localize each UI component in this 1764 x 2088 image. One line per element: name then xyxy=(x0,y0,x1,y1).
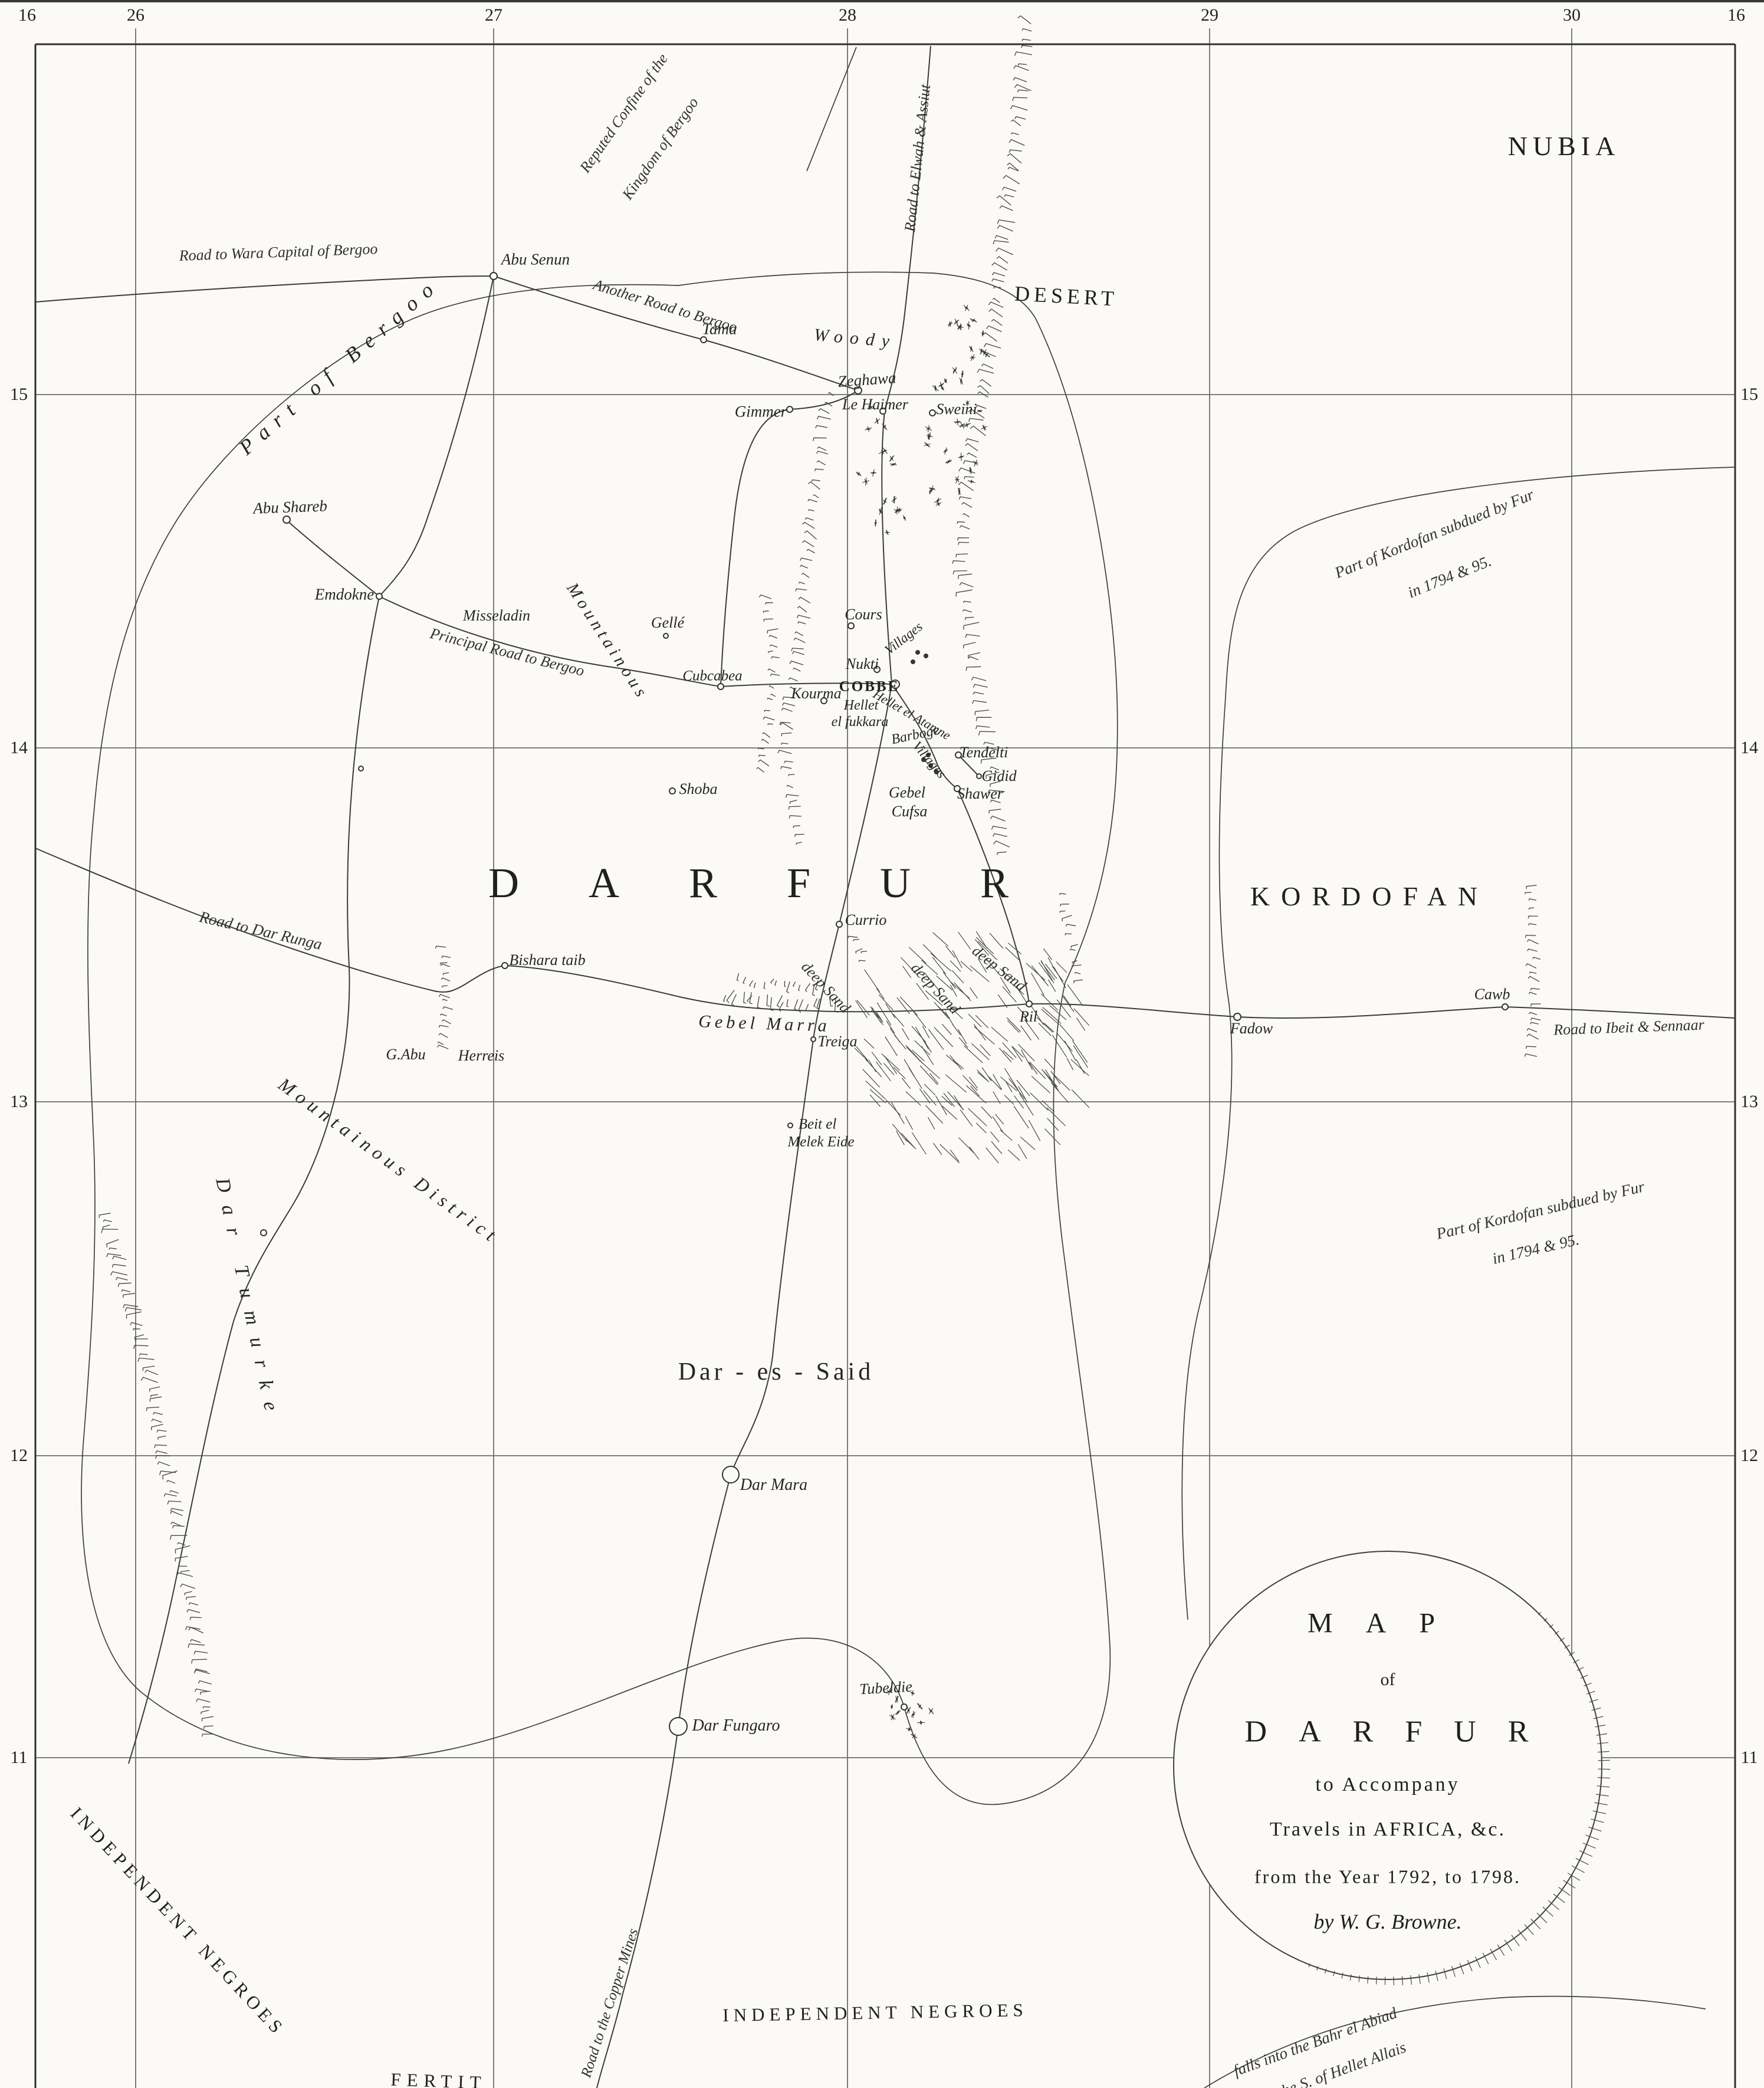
marker-nukti xyxy=(874,667,880,672)
top-scale-number: 16 xyxy=(18,5,36,25)
marker-cubcabea xyxy=(718,684,724,690)
map-artwork xyxy=(0,0,1764,2088)
latitude-number: 11 xyxy=(1741,1748,1758,1768)
cartouche-travels: Travels in AFRICA, &c. xyxy=(1270,1818,1506,1841)
marker-village-dot-1 xyxy=(916,651,919,654)
another-road-path xyxy=(494,276,858,390)
cartouche-years: from the Year 1792, to 1798. xyxy=(1254,1866,1521,1888)
marker-kourma xyxy=(821,698,827,704)
top-scale-number: 30 xyxy=(1563,5,1581,25)
marker-village-dot-2 xyxy=(924,654,928,658)
latitude-number: 11 xyxy=(11,1748,28,1768)
cartouche-darfur: DARFUR xyxy=(1245,1715,1561,1749)
cartouche-author: by W. G. Browne. xyxy=(1313,1909,1461,1934)
tendelti-gidid-path xyxy=(958,755,978,775)
marker-zeghawa xyxy=(855,387,862,394)
marker-tubeldie xyxy=(901,1704,907,1710)
marker-abu-shareb xyxy=(283,516,290,523)
marker-waypoint-2 xyxy=(261,1230,267,1236)
marker-le-haimer xyxy=(880,408,886,414)
latitude-number: 14 xyxy=(1740,738,1758,758)
cartouche-of: of xyxy=(1381,1670,1395,1690)
marker-dar-fungaro xyxy=(669,1718,687,1735)
marker-village-dot-4 xyxy=(922,758,925,761)
marker-fadow xyxy=(1234,1013,1241,1020)
marker-cawb xyxy=(1502,1004,1508,1010)
zeghawa-cubcabea-path xyxy=(721,390,858,687)
marker-gelle xyxy=(663,633,668,638)
road-to-wara-path xyxy=(35,276,494,302)
marker-gimmer xyxy=(787,406,793,412)
east-west-trunk-path xyxy=(35,848,1735,1018)
latitude-number: 12 xyxy=(1740,1446,1758,1466)
marker-village-dot-5 xyxy=(929,764,932,767)
marker-waypoint-1 xyxy=(359,766,363,771)
marker-beit-el-melek xyxy=(788,1123,793,1128)
marker-bishara-taib xyxy=(502,963,508,969)
abu-shareb-road-path xyxy=(287,520,379,596)
latitude-number: 13 xyxy=(1740,1092,1758,1112)
marker-village-dot-6 xyxy=(935,770,938,774)
cobbe-southeast-path xyxy=(892,684,1029,1004)
top-scale-number: 27 xyxy=(485,5,502,25)
marker-currio xyxy=(836,921,842,927)
southwest-road-path xyxy=(129,596,379,1764)
settlement-markers xyxy=(261,273,1508,1735)
marker-treiga xyxy=(811,1037,816,1042)
marker-abu-senun xyxy=(490,273,497,280)
latitude-number: 12 xyxy=(10,1446,28,1466)
elwah-road-path xyxy=(882,46,931,684)
top-scale-number: 28 xyxy=(839,5,856,25)
cartouche-title: MAP xyxy=(1308,1607,1468,1640)
principal-road-path xyxy=(379,596,892,687)
map-canvas: NUBIADESERTDARFURKORDOFANDar - es - Said… xyxy=(0,0,1764,2088)
darfur-boundary-path xyxy=(81,272,1118,1804)
latitude-number: 15 xyxy=(1740,385,1758,405)
latitude-number: 15 xyxy=(10,385,28,405)
marker-tama xyxy=(701,337,707,343)
marker-shoba xyxy=(669,788,675,794)
marker-tendelti xyxy=(955,752,961,758)
cartouche-accompany: to Accompany xyxy=(1315,1774,1460,1796)
latitude-number: 13 xyxy=(10,1092,28,1112)
top-scale-number: 16 xyxy=(1727,5,1745,25)
mountain-hachures xyxy=(99,16,1541,1737)
bahr-el-abiad-path xyxy=(1204,1997,1706,2088)
marker-cobbe xyxy=(891,680,899,688)
marker-sweini xyxy=(929,410,935,416)
tree-symbols xyxy=(856,305,990,1738)
top-scale-number: 26 xyxy=(127,5,144,25)
marker-village-dot-3 xyxy=(911,660,915,664)
top-scale-number: 29 xyxy=(1201,5,1218,25)
marker-ril xyxy=(1026,1001,1032,1007)
kordofan-boundary-path xyxy=(1182,467,1735,1620)
marker-gidid xyxy=(977,774,981,779)
marker-emdokne xyxy=(376,593,382,599)
marker-dar-mara xyxy=(722,1466,739,1483)
latitude-number: 14 xyxy=(10,738,28,758)
marker-shawer xyxy=(954,786,960,792)
marker-village-dot-7 xyxy=(927,753,930,757)
abu-senun-south-path xyxy=(379,276,494,596)
reputed-confine-path xyxy=(807,47,856,171)
marker-cours xyxy=(848,623,854,629)
